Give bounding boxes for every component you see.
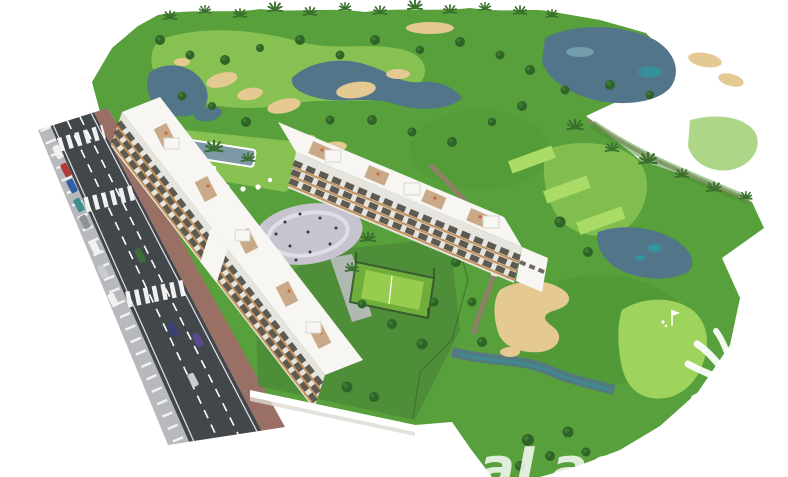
lake-highlight: [648, 244, 662, 252]
lake-highlight: [566, 47, 594, 57]
grass-shading: [410, 110, 550, 190]
render-stage: Aerial 3D architectural rendering of a w…: [0, 0, 788, 477]
fairway: [688, 116, 758, 170]
palm-logo-icon: [688, 329, 776, 470]
watermark-text: asaLasB: [408, 436, 664, 477]
aerial-render: Aerial 3D architectural rendering of a w…: [0, 0, 788, 477]
lake-highlight: [635, 255, 645, 261]
lake-highlight: [638, 66, 662, 78]
